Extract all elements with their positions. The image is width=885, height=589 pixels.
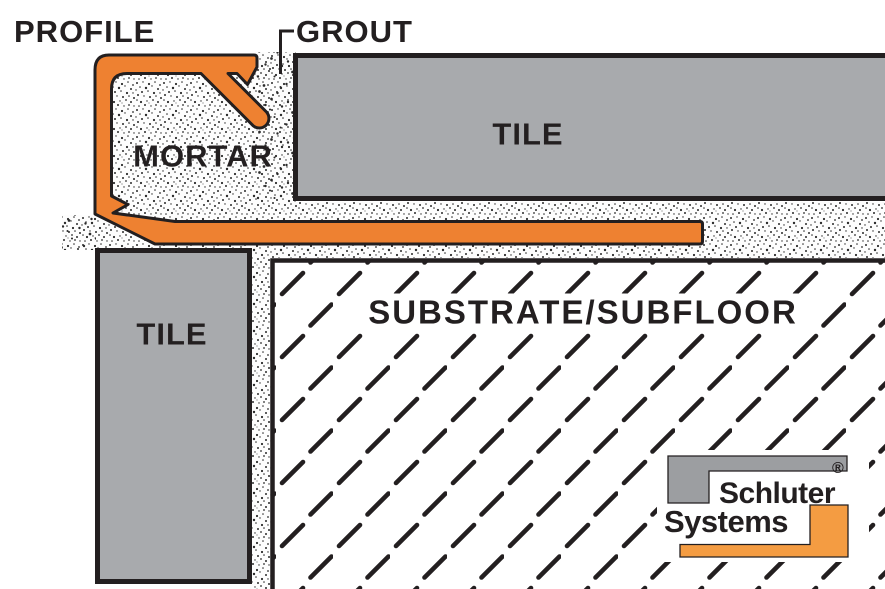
mortar-gap-vertical	[250, 202, 272, 589]
substrate-label: SUBSTRATE/SUBFLOOR	[360, 294, 806, 331]
tile-left	[98, 251, 250, 582]
tile-left-label: TILE	[136, 319, 207, 350]
profile-label: PROFILE	[14, 16, 155, 47]
registered-trademark-icon: ®	[832, 461, 844, 477]
mortar-label: MORTAR	[133, 141, 273, 172]
tile-top-label: TILE	[492, 119, 563, 150]
mortar-wedge-left-texture	[62, 215, 96, 250]
logo-text-systems: Systems	[664, 506, 788, 537]
grout-label: GROUT	[296, 16, 413, 47]
tile-top	[296, 56, 885, 199]
diagram-canvas: PROFILE GROUT MORTAR TILE TILE SUBSTRATE…	[0, 0, 885, 589]
